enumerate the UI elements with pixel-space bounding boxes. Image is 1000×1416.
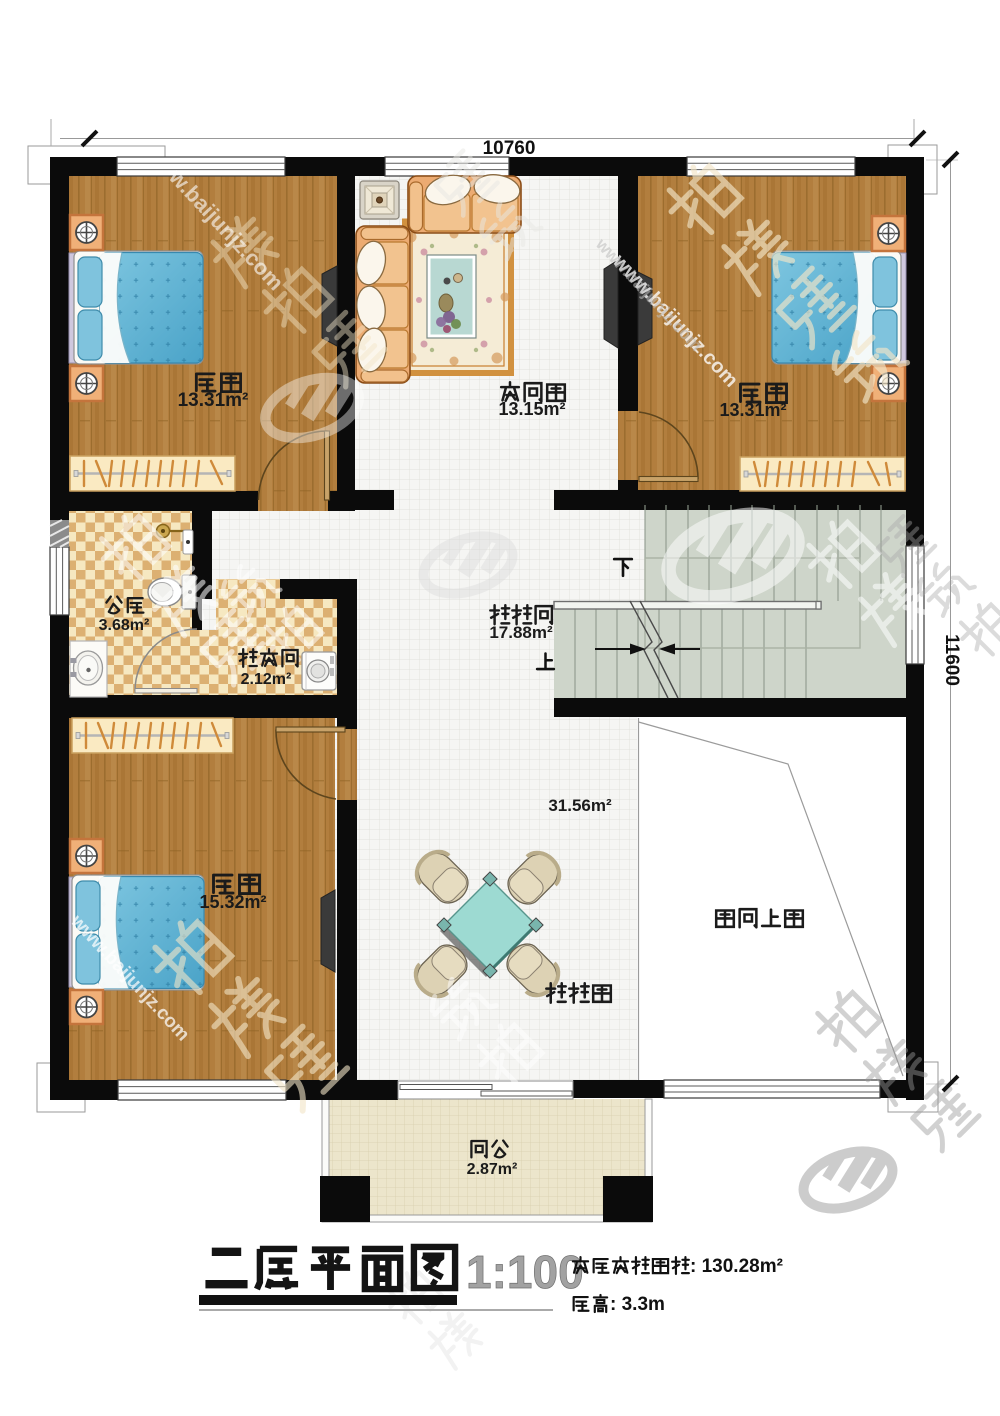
svg-text:: 130.28m²: : 130.28m² xyxy=(690,1256,783,1277)
svg-text:: 3.3m: : 3.3m xyxy=(610,1294,665,1315)
svg-text:2.12m²: 2.12m² xyxy=(241,671,292,688)
svg-text:3.68m²: 3.68m² xyxy=(99,617,150,634)
svg-text:10760: 10760 xyxy=(483,138,536,159)
svg-text:31.56m²: 31.56m² xyxy=(548,796,612,815)
svg-text:13.15m²: 13.15m² xyxy=(498,399,565,419)
svg-text:1:100: 1:100 xyxy=(466,1246,584,1298)
svg-text:13.31m²: 13.31m² xyxy=(719,400,786,420)
svg-text:17.88m²: 17.88m² xyxy=(489,623,553,642)
svg-text:11600: 11600 xyxy=(941,634,962,686)
svg-text:13.31m²: 13.31m² xyxy=(178,390,249,411)
svg-text:2.87m²: 2.87m² xyxy=(467,1161,518,1178)
svg-text:15.32m²: 15.32m² xyxy=(199,892,266,912)
